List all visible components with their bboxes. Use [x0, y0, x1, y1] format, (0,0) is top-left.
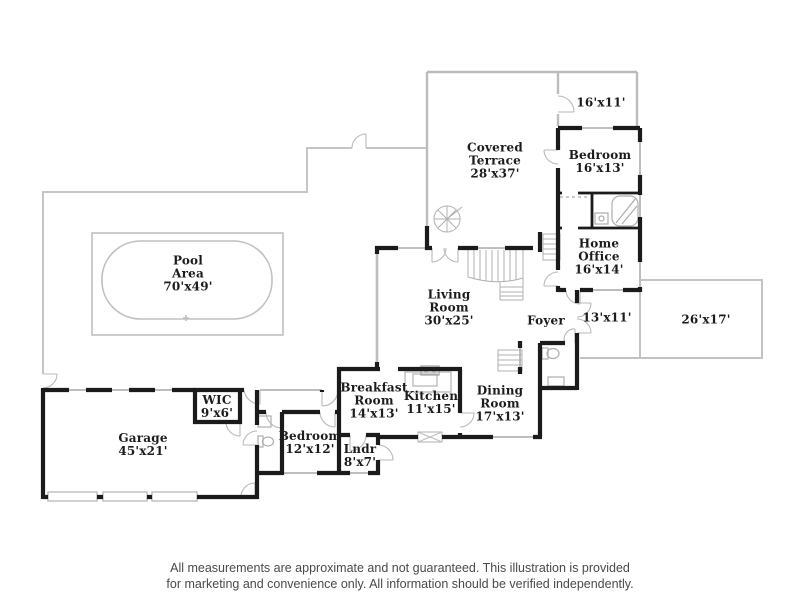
label-home-office: Home Office 16'x14' — [574, 238, 623, 277]
label-bedroom-upper: Bedroom 16'x13' — [569, 149, 632, 175]
floorplan-drawing — [0, 0, 800, 600]
disclaimer: All measurements are approximate and not… — [0, 561, 800, 592]
floorplan-page: Pool Area 70'x49' Covered Terrace 28'x37… — [0, 0, 800, 600]
powder-room-fixtures — [542, 348, 564, 386]
label-pool-area: Pool Area 70'x49' — [163, 255, 212, 294]
label-laundry: Lndr 8'x7' — [344, 443, 377, 469]
disclaimer-line-2: for marketing and convenience only. All … — [0, 577, 800, 593]
label-covered-terrace: Covered Terrace 28'x37' — [467, 142, 523, 181]
label-bedroom-lower: Bedroom 12'x12' — [279, 430, 342, 456]
garage-doors — [48, 492, 197, 501]
fireplace-vent — [418, 432, 442, 442]
spiral-staircase — [434, 206, 462, 232]
patio-outline — [43, 148, 427, 392]
label-balcony: 16'x11' — [576, 97, 625, 110]
label-dining-room: Dining Room 17'x13' — [475, 385, 524, 424]
interior-walls — [558, 193, 640, 228]
windows — [43, 128, 640, 473]
label-garage: Garage 45'x21' — [118, 432, 167, 458]
label-driveway: 26'x17' — [681, 314, 730, 327]
main-staircase — [468, 250, 523, 300]
label-entry-porch: 13'x11' — [582, 312, 631, 325]
label-breakfast-room: Breakfast Room 14'x13' — [340, 382, 407, 421]
bathroom-fixtures-upper — [560, 196, 638, 226]
label-wic: WIC 9'x6' — [201, 394, 233, 420]
label-kitchen: Kitchen 11'x15' — [404, 390, 458, 416]
bathroom-fixtures-lower — [258, 416, 274, 447]
disclaimer-line-1: All measurements are approximate and not… — [0, 561, 800, 577]
label-foyer: Foyer — [527, 315, 565, 328]
label-living-room: Living Room 30'x25' — [424, 289, 473, 328]
